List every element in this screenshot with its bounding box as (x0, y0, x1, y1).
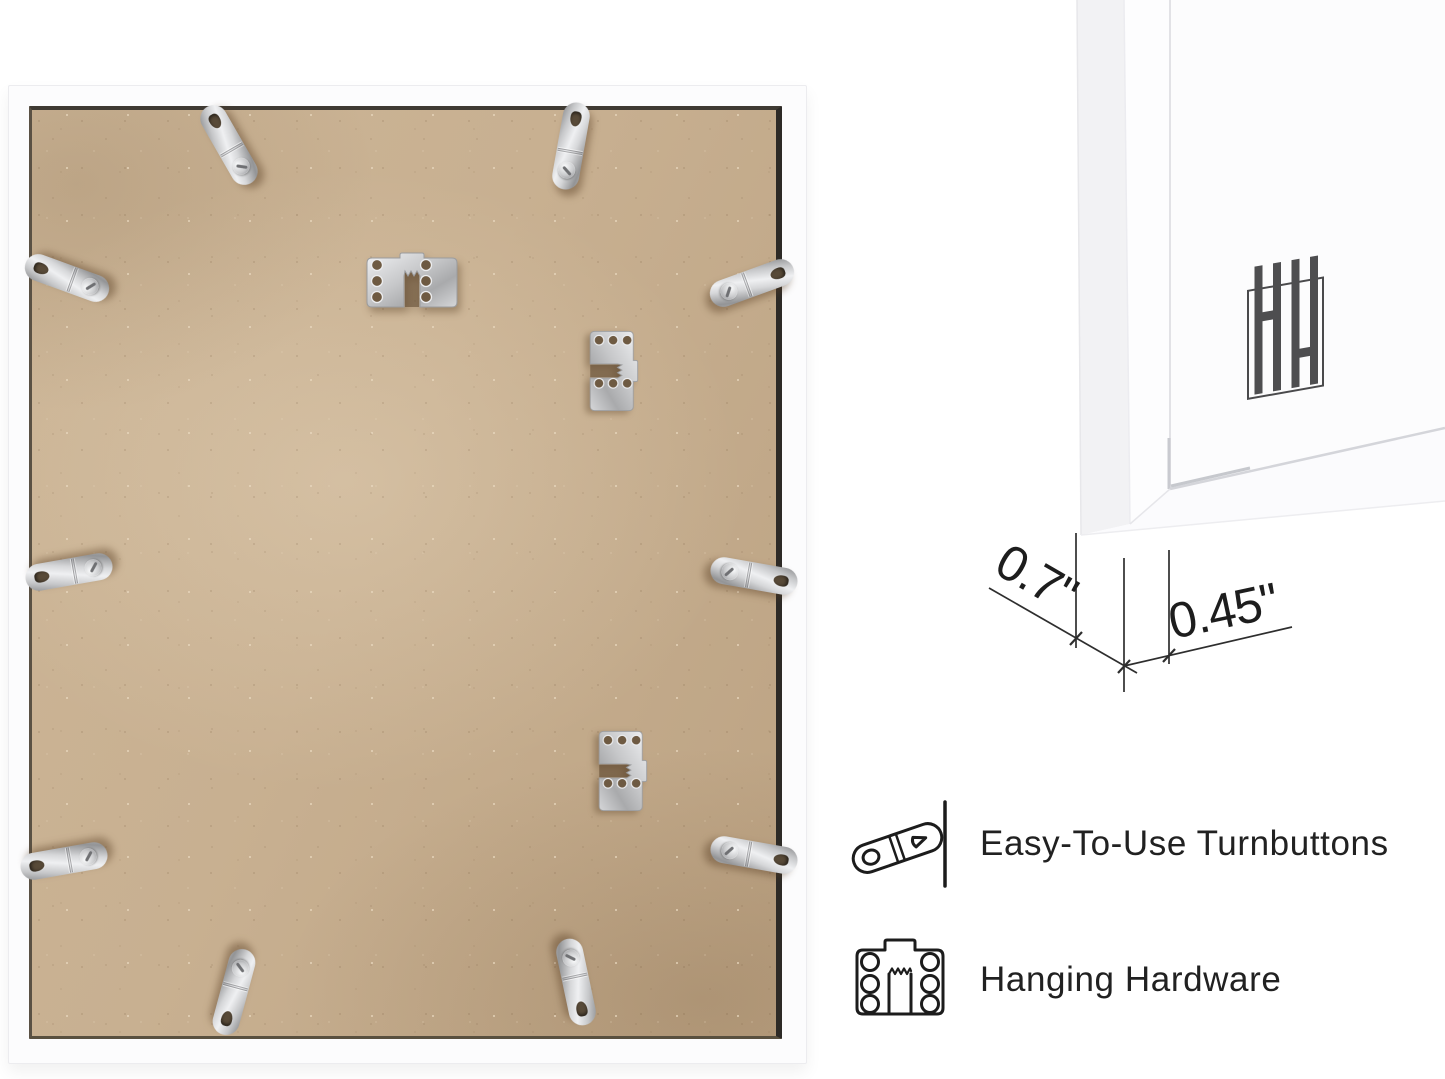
turnbutton-joint (65, 847, 74, 872)
face-dimension-label: 0.45" (1164, 572, 1283, 650)
hanging-hardware (598, 731, 647, 812)
turnbutton-screw (83, 558, 103, 578)
turnbutton-hole (769, 266, 787, 281)
turnbutton-hole (34, 570, 51, 583)
turnbutton-screw (79, 275, 101, 297)
turnbutton-hole (207, 112, 224, 130)
turnbutton-screw (557, 160, 577, 180)
turnbutton-joint (70, 558, 79, 583)
turnbutton-screw (78, 847, 98, 867)
turnbutton-joint (223, 981, 248, 992)
turnbutton-screw (720, 562, 740, 582)
turnbutton-hole (575, 1000, 589, 1017)
mat-area (1170, 0, 1445, 489)
turnbutton-screw (230, 155, 253, 178)
hanging-hardware (589, 331, 638, 412)
hanging-hardware-icon (851, 936, 951, 1020)
hanging-hardware (366, 252, 458, 308)
feature-label-turnbuttons: Easy-To-Use Turnbuttons (980, 824, 1389, 864)
turnbutton-joint (557, 147, 582, 156)
turnbutton-screw (230, 958, 251, 979)
depth-dimension-label: 0.7" (986, 533, 1086, 623)
frame-side-face (1077, 0, 1130, 535)
turnbutton-joint (66, 267, 79, 292)
turnbutton-joint (740, 272, 753, 297)
feature-label-hanging-hardware: Hanging Hardware (980, 960, 1281, 1000)
turnbutton-hole (29, 859, 46, 872)
frame-front-face (1124, 0, 1170, 524)
turnbutton-hole (32, 261, 50, 276)
frame-back-photo (8, 85, 807, 1064)
turnbutton-joint (744, 562, 753, 587)
turnbutton-joint (744, 841, 753, 866)
turnbutton-hole (569, 111, 582, 128)
turnbutton-hole (773, 853, 790, 866)
turnbutton-joint (220, 141, 244, 158)
turnbutton-joint (562, 972, 587, 982)
turnbutton-hole (220, 1010, 235, 1027)
mdf-backing-board (29, 106, 782, 1039)
turnbutton-screw (561, 948, 581, 968)
dimension-ticks (1070, 632, 1175, 673)
frame-corner-closeup: 0.7" 0.45" (980, 0, 1445, 720)
turnbutton-screw (720, 841, 740, 861)
turnbutton-icon (846, 795, 960, 895)
product-image: 0.7" 0.45" Easy-To-Use Turnbuttons Hangi… (0, 0, 1445, 1079)
turnbutton-hole (773, 574, 790, 587)
turnbutton-screw (718, 280, 740, 302)
